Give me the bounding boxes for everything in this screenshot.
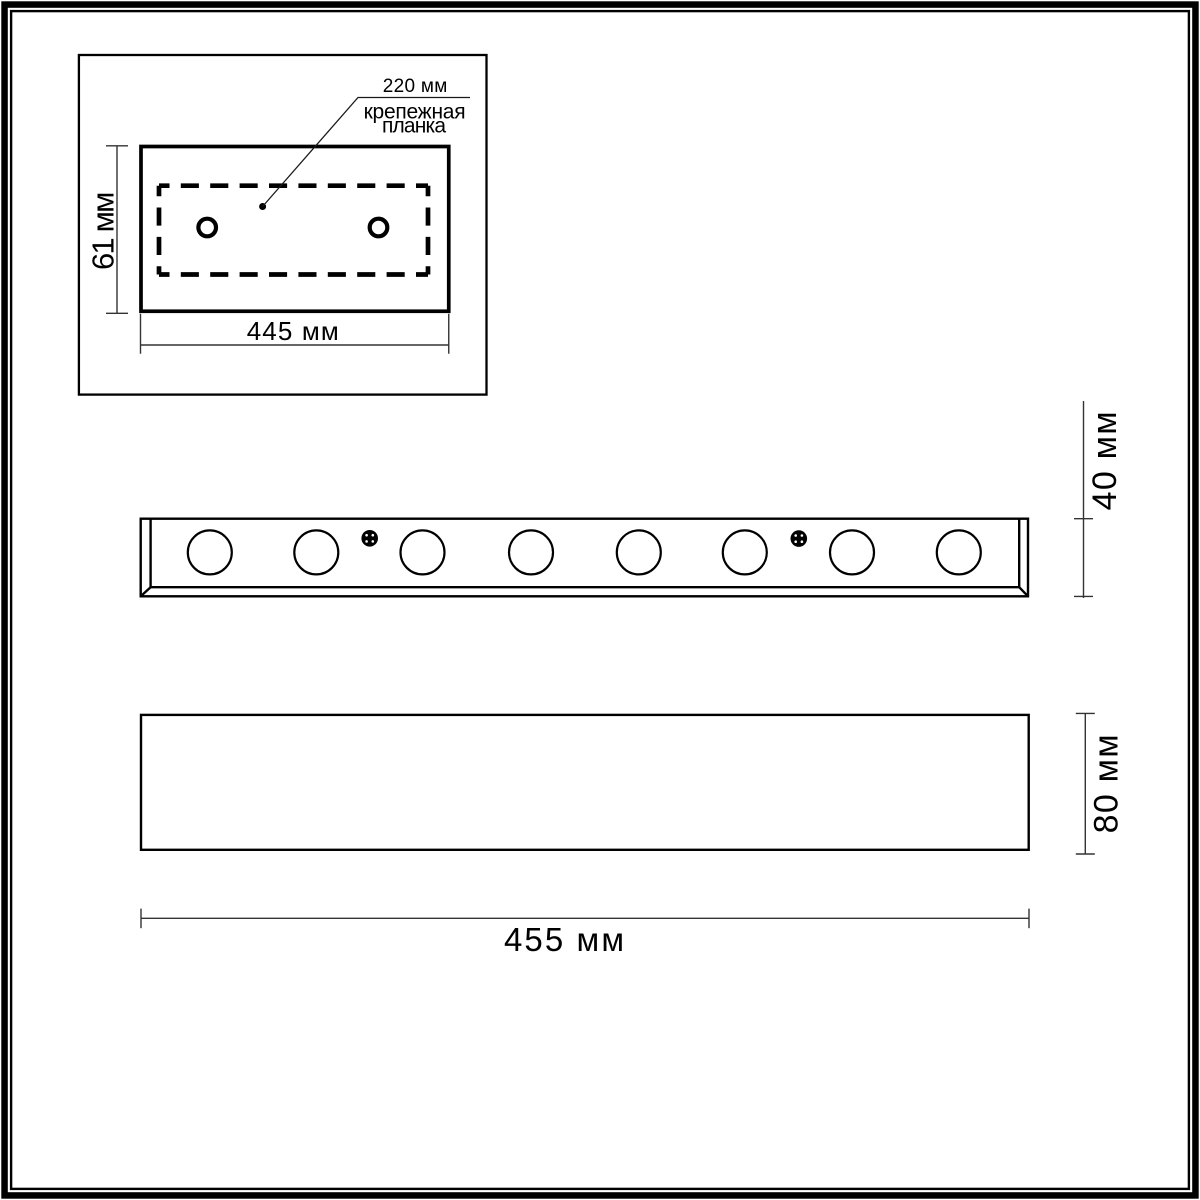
- svg-text:220 мм: 220 мм: [383, 76, 448, 97]
- svg-text:80 мм: 80 мм: [1087, 734, 1125, 833]
- svg-text:61 мм: 61 мм: [85, 192, 120, 270]
- svg-text:445 мм: 445 мм: [247, 316, 339, 346]
- svg-text:40 мм: 40 мм: [1086, 411, 1124, 510]
- svg-text:планка: планка: [382, 115, 446, 138]
